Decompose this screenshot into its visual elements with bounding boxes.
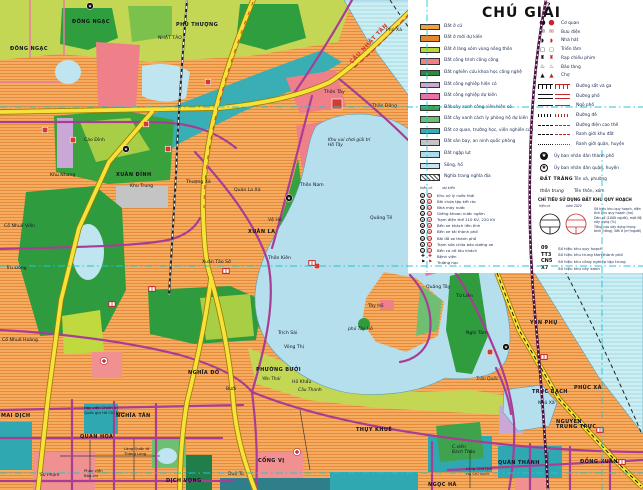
ubnd-star-marker: ★ bbox=[123, 146, 130, 153]
star-outline-icon: ★ bbox=[540, 164, 548, 172]
star-glyph: ★ bbox=[504, 345, 508, 350]
land-use-swatch bbox=[420, 116, 440, 123]
line-label: Đường phố bbox=[576, 94, 600, 99]
utility-icon-existing: B bbox=[420, 223, 425, 228]
star-glyph: ★ bbox=[124, 147, 128, 152]
legend-land-use-item: Đất công trình công cộng bbox=[420, 56, 534, 68]
map-label: MAI DỊCH bbox=[1, 413, 31, 419]
name-sample-label: Tên thôn, xóm bbox=[574, 189, 604, 194]
legend-poi-item: ◗◗Nhà hát bbox=[538, 37, 642, 46]
hospital-marker bbox=[293, 448, 300, 455]
zone-code: 09 bbox=[541, 245, 558, 251]
poi-label: Cơ quan bbox=[561, 21, 579, 26]
utility-label: Trạm sửa chữa bảo dưỡng xe bbox=[437, 242, 493, 247]
land-use-label: Đất ngập lụt bbox=[444, 152, 471, 157]
legend-line-item: Đường sắt và ga bbox=[538, 82, 642, 92]
planning-map-screenshot: ★★★★ ĐÔNG NGẠCĐÔNG NGẠCPHÚ THƯỢNGNHẬT TẢ… bbox=[0, 0, 643, 490]
admin-label: Ủy ban nhân dân quận, huyện bbox=[554, 166, 619, 171]
land-use-label: Nghĩa trang nghĩa địa bbox=[444, 175, 491, 180]
line-sample-existing bbox=[538, 144, 553, 145]
land-use-swatch bbox=[420, 174, 440, 181]
line-sample-planned bbox=[555, 144, 570, 145]
utility-icon-planned: B bbox=[427, 223, 432, 228]
exhibition-planned-icon: ▢ bbox=[547, 47, 556, 53]
legend-land-use-item: Đất nghiên cứu khoa học công nghệ bbox=[420, 67, 534, 79]
utility-icon-existing: K bbox=[420, 193, 425, 198]
planned-building-marker bbox=[70, 137, 76, 143]
zone-code: X7 bbox=[541, 265, 558, 271]
line-sample-planned bbox=[555, 125, 570, 126]
office-planned-icon: ⬤ bbox=[547, 20, 556, 26]
legend-name-samples: ĐẤT TRẮNGTên xã, phườngthôn trungTên thô… bbox=[540, 174, 643, 197]
legend-utilities-list: KKKhu xử lý nước thảiRRBãi chứa tập kết … bbox=[420, 192, 534, 266]
land-use-label: Đất ở mới dự kiến bbox=[444, 36, 482, 41]
map-label: NGHĨA ĐÔ bbox=[188, 369, 220, 376]
map-label: Sư Phạm bbox=[40, 472, 59, 478]
legend-land-use-item: Đất công nghiệp dự kiến bbox=[420, 91, 534, 103]
line-sample-existing bbox=[538, 134, 553, 135]
line-sample-planned bbox=[555, 94, 570, 98]
legend-poi-item: ⬤⬤Cơ quan bbox=[538, 19, 642, 28]
line-label: Ranh giới khu đất bbox=[576, 132, 614, 137]
utility-label: Trường học bbox=[437, 260, 458, 265]
utility-icon-planned: S bbox=[427, 242, 432, 247]
school-marker bbox=[619, 460, 625, 465]
exhibition-icon: ▢ bbox=[538, 47, 547, 53]
line-sample-planned bbox=[555, 114, 570, 117]
utility-icon-existing: T bbox=[420, 217, 425, 222]
map-label: Cổ Nhuế Viên bbox=[4, 222, 35, 229]
land-use-swatch bbox=[420, 163, 440, 170]
utility-icon-planned: N bbox=[427, 205, 432, 210]
land-use-label: Đất sân bay, an ninh quốc phòng bbox=[444, 140, 515, 145]
land-use-label: Đất cây xanh công viên hiện có bbox=[444, 106, 512, 111]
land-use-label: Đất nghiên cứu khoa học công nghệ bbox=[444, 71, 522, 76]
legend-name-sample: thôn trungTên thôn, xóm bbox=[540, 186, 643, 198]
name-sample-text: ĐẤT TRẮNG bbox=[540, 177, 574, 182]
indicator-row: Dân số (1000 người), mật độ xây dựng (%) bbox=[594, 217, 642, 225]
map-label: QUAN HOA bbox=[80, 434, 113, 440]
legend-line-item: Ngõ phố bbox=[538, 101, 642, 111]
map-label: Khu Trung bbox=[130, 183, 153, 189]
line-sample-existing bbox=[538, 94, 553, 98]
line-sample-existing bbox=[538, 114, 553, 117]
line-sample-existing bbox=[538, 84, 553, 89]
map-legend: CHÚ GIẢI Đất ở cũĐất ở mới dự kiếnĐất ở … bbox=[408, 0, 643, 273]
map-label: Bưởi bbox=[226, 385, 236, 392]
star-glyph: ★ bbox=[88, 4, 92, 9]
zone-code-label: Số hiệu khu trung tâm thành phố bbox=[558, 252, 623, 257]
map-label: Nghi Tàm bbox=[466, 329, 488, 336]
legend-code-item: 09Số hiệu khu quy hoạch bbox=[541, 245, 643, 252]
zone-code-label: Số hiệu khu cây xanh bbox=[558, 266, 600, 271]
utility-icon-planned: G bbox=[427, 211, 432, 216]
map-label: THỤY KHUÊ bbox=[356, 425, 392, 433]
land-use-swatch bbox=[420, 47, 440, 54]
legend-poi-list: ⬤⬤Cơ quan✉✉Bưu điện◗◗Nhà hát▢▢Triển lãm♜… bbox=[538, 19, 642, 80]
map-label: Lăng Chủ tịchHồ Chí Minh bbox=[466, 466, 493, 476]
poi-label: Nhà hát bbox=[561, 38, 578, 43]
line-label: Đường đê bbox=[576, 113, 597, 118]
map-label: Trù Đông bbox=[5, 264, 27, 271]
land-use-swatch bbox=[420, 93, 440, 100]
hospital-marker bbox=[100, 357, 107, 364]
legend-land-use-item: Đất cơ quan, trường học, viện nghiên cứu bbox=[420, 125, 534, 137]
map-label: TRÚC BẠCH bbox=[532, 388, 568, 395]
star-filled-icon: ★ bbox=[540, 152, 548, 160]
map-label: NGỌC HÀ bbox=[428, 481, 457, 488]
land-use-swatch bbox=[420, 70, 440, 77]
utility-header-planned: dự kiến bbox=[442, 186, 455, 190]
legend-land-use-item: Đất ở làng xóm vùng nông thôn bbox=[420, 44, 534, 56]
legend-utility-header: hiện có dự kiến bbox=[420, 186, 455, 190]
planned-building-marker bbox=[487, 349, 493, 355]
land-use-swatch bbox=[420, 58, 440, 65]
utility-icon-planned: ✚ bbox=[427, 254, 433, 259]
planned-building-marker bbox=[205, 79, 211, 85]
line-label: Đường điện cao thế bbox=[576, 123, 618, 128]
planned-building-marker bbox=[165, 146, 171, 152]
utility-icon-existing: N bbox=[420, 205, 425, 210]
market-icon: ▲ bbox=[538, 73, 547, 79]
utility-icon-planned: C bbox=[427, 248, 432, 253]
utility-icon-planned: R bbox=[427, 199, 432, 204]
name-sample-label: Tên xã, phường bbox=[574, 177, 607, 182]
map-label: PHÚC XÁ bbox=[574, 384, 602, 391]
line-label: Đường sắt và ga bbox=[576, 84, 611, 89]
legend-admin-item: ★Ủy ban nhân dân quận, huyện bbox=[540, 162, 643, 174]
map-label: YÊN PHỤ bbox=[529, 318, 558, 326]
map-label: Thôn Đông bbox=[371, 102, 397, 109]
post-office-planned-icon: ✉ bbox=[547, 29, 556, 35]
utility-label: Bãi đỗ xe thành phố bbox=[437, 236, 476, 241]
legend-land-use-list: Đất ở cũĐất ở mới dự kiếnĐất ở làng xóm … bbox=[420, 21, 534, 183]
market-planned-icon: ▲ bbox=[547, 73, 556, 79]
legend-name-sample: ĐẤT TRẮNGTên xã, phường bbox=[540, 174, 643, 186]
map-label: phủ Tây Hồ bbox=[347, 325, 373, 332]
land-use-swatch bbox=[420, 82, 440, 89]
utility-icon-existing: Đ bbox=[420, 236, 425, 241]
zone-code: TT3 bbox=[541, 252, 558, 258]
map-label: Quảng Tây bbox=[426, 283, 451, 290]
utility-label: Khu xử lý nước thải bbox=[437, 193, 475, 198]
line-sample-existing bbox=[538, 125, 553, 126]
utility-icon-planned: B bbox=[427, 229, 432, 234]
land-use-swatch bbox=[420, 128, 440, 135]
school-marker bbox=[309, 261, 315, 266]
map-label: Thôn Tây bbox=[323, 88, 345, 95]
indicator-rows: Số hiệu khu quy hoạch, diện tích khu quy… bbox=[594, 208, 642, 235]
line-sample-planned bbox=[555, 134, 570, 135]
school-marker bbox=[149, 287, 155, 292]
utility-icon-existing: ⚑ bbox=[420, 260, 426, 265]
land-use-label: Đất cây xanh cách ly phòng hộ dự kiến bbox=[444, 117, 528, 122]
line-sample-planned bbox=[555, 84, 570, 89]
legend-land-use-item: Đất công nghiệp hiện có bbox=[420, 79, 534, 91]
land-use-label: Đất công nghiệp dự kiến bbox=[444, 94, 497, 99]
post-office-icon: ✉ bbox=[538, 29, 547, 35]
map-label: Trích Sài bbox=[277, 329, 297, 336]
map-label: Thôn Kiên bbox=[267, 254, 291, 261]
legend-poi-item: ▢▢Triển lãm bbox=[538, 45, 642, 54]
legend-code-item: X7Số hiệu khu cây xanh bbox=[541, 265, 643, 272]
cinema-icon: ♜ bbox=[538, 55, 547, 61]
map-label: Tứ Liên bbox=[455, 292, 473, 299]
utility-label: Bến xe tải thành phố bbox=[437, 229, 478, 234]
poi-label: Bảo tàng bbox=[561, 65, 581, 70]
school-marker bbox=[109, 302, 115, 307]
zone-code-label: Số hiệu khu quy hoạch bbox=[558, 246, 602, 251]
land-use-label: Đất ở làng xóm vùng nông thôn bbox=[444, 48, 512, 53]
indicator-col-planned: năm 2020 bbox=[566, 204, 582, 208]
admin-label: Ủy ban nhân dân thành phố bbox=[554, 154, 614, 159]
land-use-swatch bbox=[420, 105, 440, 112]
land-use-label: Đất ở cũ bbox=[444, 25, 462, 30]
utility-header-existing: hiện có bbox=[420, 186, 432, 190]
utility-icon-existing: ✚ bbox=[420, 254, 426, 259]
theater-icon: ◗ bbox=[538, 38, 547, 44]
map-label: Duệ Tú bbox=[228, 470, 244, 477]
legend-poi-item: ♨♨Bảo tàng bbox=[538, 63, 642, 72]
utility-icon-planned: T bbox=[427, 217, 432, 222]
legend-poi-item: ♜♜Rạp chiếu phim bbox=[538, 54, 642, 63]
land-use-swatch bbox=[420, 24, 440, 31]
zone-code: CN5 bbox=[541, 258, 558, 264]
map-label: ĐÔNG NGẠC bbox=[10, 45, 48, 52]
map-label: Yên Thái bbox=[262, 375, 281, 382]
utility-icon-existing: G bbox=[420, 211, 425, 216]
map-label: Võng Thị bbox=[284, 344, 304, 350]
utility-icon-existing: S bbox=[420, 242, 425, 247]
ubnd-star-marker: ★ bbox=[87, 3, 94, 10]
map-label: Khu Nhang bbox=[50, 172, 75, 178]
map-label: PHÚ THƯỢNG bbox=[176, 21, 218, 28]
legend-code-item: TT3Số hiệu khu trung tâm thành phố bbox=[541, 252, 643, 259]
land-use-label: Đất cơ quan, trường học, viện nghiên cứu bbox=[444, 129, 533, 134]
map-label: QUÁN THÁNH bbox=[498, 459, 540, 466]
school-marker bbox=[223, 269, 229, 274]
legend-land-use-item: Đất cây xanh cách ly phòng hộ dự kiến bbox=[420, 114, 534, 126]
name-sample-text: thôn trung bbox=[540, 189, 574, 194]
map-label: Ngũ Xã bbox=[538, 400, 555, 406]
legend-land-use-item: Đất sân bay, an ninh quốc phòng bbox=[420, 137, 534, 149]
indicator-diagram bbox=[538, 209, 590, 243]
utility-label: Nhà máy nước bbox=[437, 205, 465, 210]
utility-icon-planned: Đ bbox=[427, 236, 432, 241]
utility-icon-planned: ⚑ bbox=[427, 260, 433, 265]
utility-icon-existing: C bbox=[420, 248, 425, 253]
utility-label: Bến xe khách liên tỉnh bbox=[437, 223, 480, 228]
indicator-title: CHỈ TIÊU SỬ DỤNG ĐẤT KHU QUY HOẠCH bbox=[538, 197, 643, 202]
poi-label: Triển lãm bbox=[561, 47, 581, 52]
map-label: Thượng Xá bbox=[185, 178, 211, 185]
legend-line-item: Đường điện cao thế bbox=[538, 120, 642, 130]
map-label: Làng Quốc tếThăng Long bbox=[123, 446, 150, 456]
map-label: Thôn Nam bbox=[299, 181, 324, 188]
land-use-swatch bbox=[420, 151, 440, 158]
planned-building-marker bbox=[42, 127, 48, 133]
legend-land-use-item: Nghĩa trang nghĩa địa bbox=[420, 172, 534, 184]
legend-code-list: 09Số hiệu khu quy hoạchTT3Số hiệu khu tr… bbox=[541, 245, 643, 271]
legend-admin-list: ★Ủy ban nhân dân thành phố★Ủy ban nhân d… bbox=[540, 150, 643, 174]
indicator-col-existing: hiện có bbox=[539, 204, 550, 208]
legend-poi-item: ▲▲Chợ bbox=[538, 72, 642, 81]
line-label: Ngõ phố bbox=[576, 103, 594, 108]
utility-label: Bến ca nô tàu khách bbox=[437, 248, 477, 253]
legend-land-use-item: Đất ở mới dự kiến bbox=[420, 33, 534, 45]
legend-code-item: CN5Số hiệu khu công nghiệp tập trung bbox=[541, 258, 643, 265]
school-marker bbox=[597, 428, 603, 433]
poi-label: Chợ bbox=[561, 73, 570, 78]
legend-line-item: Ranh giới quận, huyện bbox=[538, 140, 642, 150]
legend-poi-item: ✉✉Bưu điện bbox=[538, 28, 642, 37]
poi-label: Bưu điện bbox=[561, 30, 580, 35]
map-label: XUÂN LA bbox=[248, 228, 275, 235]
legend-land-use-item: Sông, hồ bbox=[420, 160, 534, 172]
legend-line-item: Ranh giới khu đất bbox=[538, 130, 642, 140]
land-use-label: Sông, hồ bbox=[444, 164, 463, 169]
poi-label: Rạp chiếu phim bbox=[561, 56, 595, 61]
legend-line-item: Đường phố bbox=[538, 92, 642, 102]
map-label: DỊCH VỌNG bbox=[166, 478, 202, 484]
map-label: Cáo Đỉnh bbox=[84, 136, 105, 143]
indicator-row: Tầng cao xây dựng trung bình (tầng), đất… bbox=[594, 226, 642, 234]
map-label: PHƯỜNG BƯỞI bbox=[256, 365, 301, 373]
land-use-swatch bbox=[420, 139, 440, 146]
museum-planned-icon: ♨ bbox=[547, 64, 556, 70]
zone-code-label: Số hiệu khu công nghiệp tập trung bbox=[558, 259, 626, 264]
utility-label: Bãi chứa tập kết rác bbox=[437, 199, 476, 204]
office-icon: ⬤ bbox=[538, 20, 547, 26]
land-use-label: Đất công trình công cộng bbox=[444, 59, 499, 64]
map-label: Cầu Thanh bbox=[298, 386, 322, 393]
land-use-label: Đất công nghiệp hiện có bbox=[444, 83, 497, 88]
star-glyph: ★ bbox=[287, 196, 291, 201]
utility-icon-existing: R bbox=[420, 199, 425, 204]
legend-utility-item: ⚑⚑Trường học bbox=[420, 260, 534, 266]
map-label: Quán La Xá bbox=[234, 186, 261, 193]
legend-line-styles-list: Đường sắt và gaĐường phốNgõ phốĐường đêĐ… bbox=[538, 82, 642, 149]
planned-building-marker bbox=[143, 121, 149, 127]
legend-admin-item: ★Ủy ban nhân dân thành phố bbox=[540, 150, 643, 162]
line-label: Ranh giới quận, huyện bbox=[576, 142, 624, 147]
map-label: Xuân Tảo Sở bbox=[202, 258, 231, 265]
legend-land-use-item: Đất ở cũ bbox=[420, 21, 534, 33]
line-sample-planned bbox=[555, 105, 570, 106]
school-marker bbox=[541, 355, 547, 360]
ubnd-star-marker: ★ bbox=[503, 344, 510, 351]
legend-land-use-item: Đất cây xanh công viên hiện có bbox=[420, 102, 534, 114]
line-sample-existing bbox=[538, 105, 553, 106]
map-label: XUÂN ĐỈNH bbox=[116, 170, 152, 178]
map-label: ĐÔNG NGẠC bbox=[72, 18, 110, 25]
map-label: Quảng Tế bbox=[370, 214, 392, 221]
utility-label: Trạm điện thế 110 KV, 220 KV bbox=[437, 217, 495, 222]
utility-icon-existing: B bbox=[420, 229, 425, 234]
map-label: CỐNG VỊ bbox=[258, 456, 284, 464]
planned-building-marker bbox=[332, 99, 342, 109]
cinema-planned-icon: ♜ bbox=[547, 55, 556, 61]
utility-icon-planned: K bbox=[427, 193, 432, 198]
museum-icon: ♨ bbox=[538, 64, 547, 70]
map-label: Cổ Nhuế Hoàng bbox=[2, 336, 38, 343]
land-use-swatch bbox=[420, 35, 440, 42]
theater-planned-icon: ◗ bbox=[547, 38, 556, 44]
ubnd-star-marker: ★ bbox=[286, 195, 293, 202]
utility-label: Bệnh viện bbox=[437, 254, 456, 259]
legend-line-item: Đường đê bbox=[538, 111, 642, 121]
legend-land-use-item: Đất ngập lụt bbox=[420, 149, 534, 161]
utility-label: Giếng khoan nước ngầm bbox=[437, 211, 485, 216]
indicator-row: Số hiệu khu quy hoạch, diện tích khu quy… bbox=[594, 208, 642, 216]
map-label: Trấn Quốc bbox=[476, 375, 499, 382]
